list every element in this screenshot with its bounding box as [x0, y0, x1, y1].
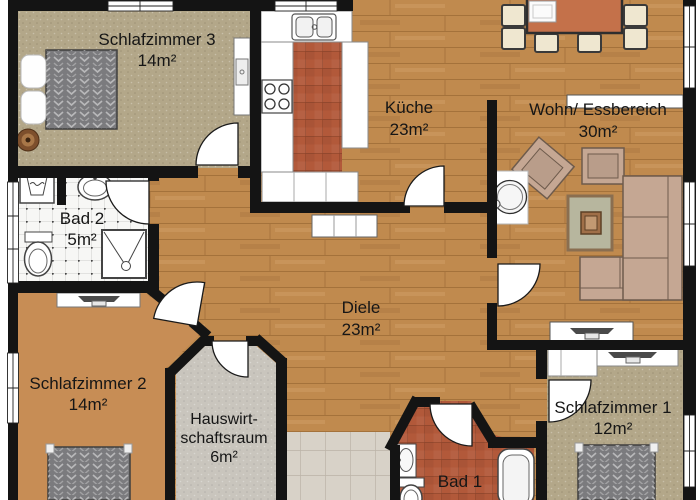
room-label-schlafzimmer3: Schlafzimmer 3 — [98, 30, 215, 50]
room-area-hauswirtschaftsraum: 6m² — [210, 448, 238, 468]
room-label-diele: Diele — [342, 298, 381, 318]
room-label-bad1: Bad 1 — [438, 472, 482, 492]
room-label-hauswirtschaftsraum-line1: Hauswirt- — [190, 410, 258, 430]
floor-plan: Schlafzimmer 3 14m² Küche 23m² Wohn/ Ess… — [0, 0, 700, 500]
room-area-schlafzimmer1: 12m² — [594, 419, 633, 439]
room-label-kueche: Küche — [385, 98, 433, 118]
room-area-diele: 23m² — [342, 320, 381, 340]
room-area-bad2: 5m² — [67, 230, 96, 250]
room-area-schlafzimmer3: 14m² — [138, 51, 177, 71]
room-label-schlafzimmer2: Schlafzimmer 2 — [29, 374, 146, 394]
room-label-hauswirtschaftsraum-line2: schaftsraum — [180, 429, 267, 449]
room-area-kueche: 23m² — [390, 120, 429, 140]
room-area-wohn-essbereich: 30m² — [579, 122, 618, 142]
room-label-bad2: Bad 2 — [60, 209, 104, 229]
room-label-wohn-essbereich: Wohn/ Essbereich — [529, 100, 667, 120]
room-labels: Schlafzimmer 3 14m² Küche 23m² Wohn/ Ess… — [0, 0, 700, 500]
room-label-schlafzimmer1: Schlafzimmer 1 — [554, 398, 671, 418]
room-area-schlafzimmer2: 14m² — [69, 395, 108, 415]
